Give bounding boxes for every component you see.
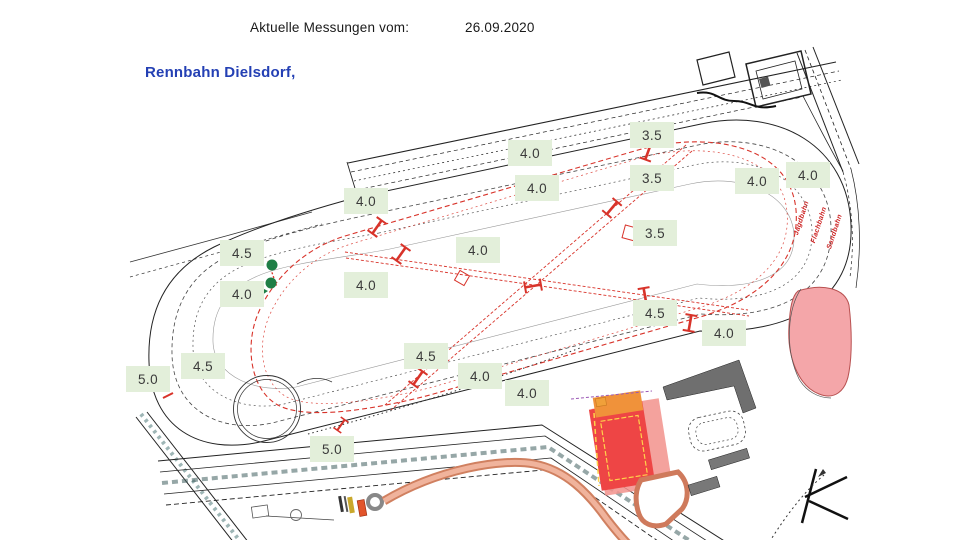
bottom-left-structures [251, 495, 382, 521]
measurement-label: 4.5 [181, 353, 225, 379]
measurement-label: 3.5 [633, 220, 677, 246]
measurement-label: 4.5 [633, 300, 677, 326]
measurement-report-page: Aktuelle Messungen vom: 26.09.2020 Rennb… [0, 0, 960, 540]
measurement-label: 4.0 [505, 380, 549, 406]
bottom-right-marks [759, 469, 848, 540]
measurement-label: 4.0 [508, 140, 552, 166]
measurement-label: 4.0 [456, 237, 500, 263]
pink-area [789, 287, 851, 398]
site-plan-drawing [0, 0, 960, 540]
measurement-label: 4.0 [344, 188, 388, 214]
measurement-label: 4.0 [344, 272, 388, 298]
left-diagonal-road [136, 412, 256, 540]
measurement-label: 4.0 [786, 162, 830, 188]
report-title-label: Aktuelle Messungen vom: [250, 20, 409, 35]
measurement-label: 5.0 [126, 366, 170, 392]
measurement-label: 4.0 [735, 168, 779, 194]
measurement-label: 3.5 [630, 165, 674, 191]
report-date: 26.09.2020 [465, 20, 535, 35]
map-title: Rennbahn Dielsdorf, [145, 64, 295, 81]
measurement-label: 4.0 [515, 175, 559, 201]
measurement-label: 4.5 [404, 343, 448, 369]
measurement-label: 5.0 [310, 436, 354, 462]
measurement-label: 4.0 [220, 281, 264, 307]
measurement-label: 4.5 [220, 240, 264, 266]
measurement-label: 4.0 [458, 363, 502, 389]
measurement-label: 3.5 [630, 122, 674, 148]
measurement-label: 4.0 [702, 320, 746, 346]
paddock-oval [686, 409, 748, 454]
